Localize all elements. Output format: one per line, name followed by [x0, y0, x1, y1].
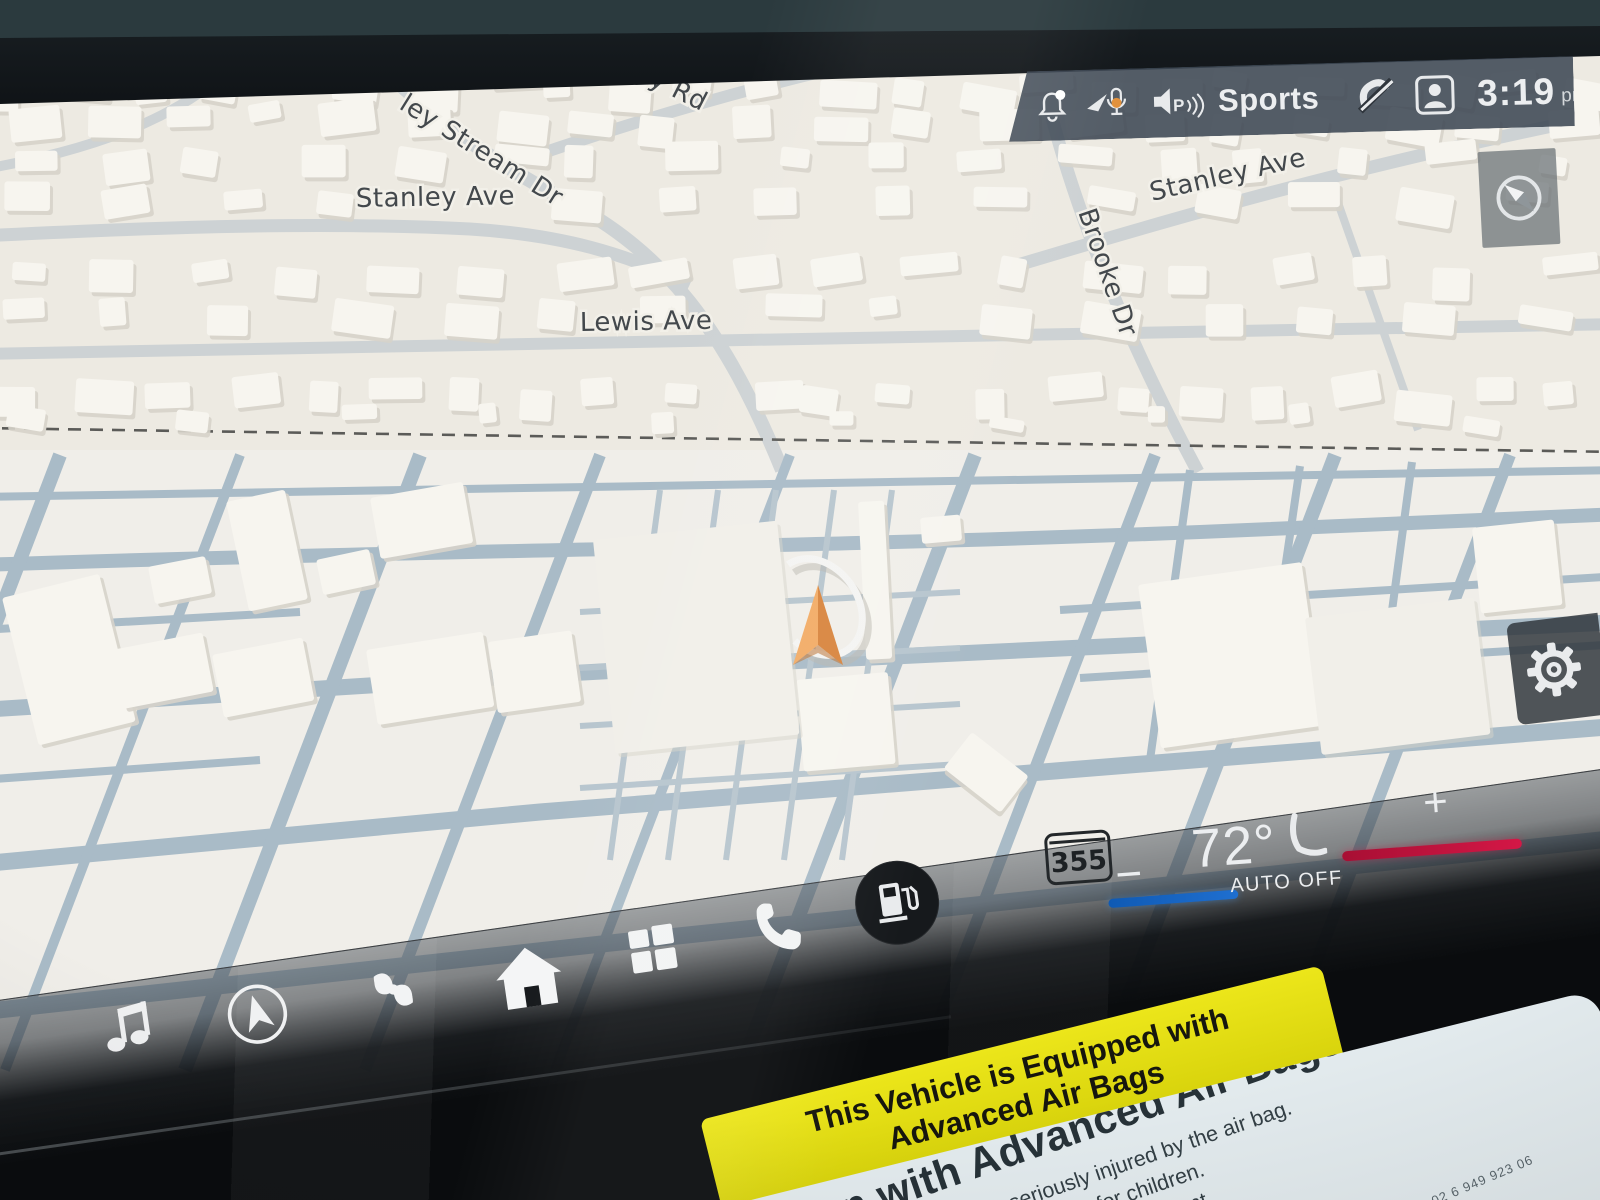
preset-badge[interactable]: 355 — [1044, 829, 1114, 886]
settings-button[interactable] — [1506, 613, 1600, 725]
app-grid-icon — [619, 916, 685, 982]
temp-decrease-button[interactable]: − — [1114, 850, 1144, 898]
temperature-value: 72° — [1189, 812, 1278, 880]
dock-climate-button[interactable] — [356, 952, 431, 1027]
dock-fuel-button[interactable] — [850, 855, 945, 950]
dock-navigation-button[interactable] — [220, 977, 295, 1052]
music-note-icon — [96, 995, 164, 1063]
vehicle-location-marker — [733, 545, 903, 705]
clock-time: 3:19 — [1477, 71, 1556, 115]
compass-icon — [1492, 171, 1547, 226]
infotainment-screen: ley Stream Dr y Rd Stanley Ave Stanley A… — [0, 0, 1600, 1200]
user-profile-icon[interactable] — [1413, 72, 1458, 117]
dock-phone-button[interactable] — [745, 893, 811, 959]
phone-disabled-icon — [1355, 77, 1400, 116]
heated-seat-icon — [1284, 809, 1328, 864]
temp-increase-button[interactable]: + — [1422, 780, 1450, 824]
dock-apps-button[interactable] — [619, 916, 685, 982]
fuel-pump-icon — [870, 874, 925, 932]
street-label: Stanley Ave — [356, 181, 516, 214]
preset-number: 355 — [1050, 844, 1108, 879]
svg-text:P: P — [1173, 96, 1185, 115]
dock-audio-button[interactable] — [96, 995, 164, 1063]
home-icon — [486, 934, 572, 1020]
dock-home-button[interactable] — [486, 934, 572, 1020]
gear-icon — [1523, 638, 1585, 700]
audio-source-label[interactable]: Sports — [1218, 80, 1320, 119]
heat-indicator-bar — [1342, 838, 1522, 861]
voice-location-icon[interactable] — [1084, 83, 1137, 124]
speaker-park-assist-icon: P — [1150, 82, 1209, 122]
notification-bell-icon[interactable] — [1034, 87, 1071, 124]
fan-icon — [356, 952, 431, 1027]
phone-icon — [745, 893, 811, 959]
street-label: Lewis Ave — [580, 306, 713, 338]
compass-button[interactable] — [1478, 148, 1561, 248]
navigation-arrow-icon — [220, 977, 295, 1052]
